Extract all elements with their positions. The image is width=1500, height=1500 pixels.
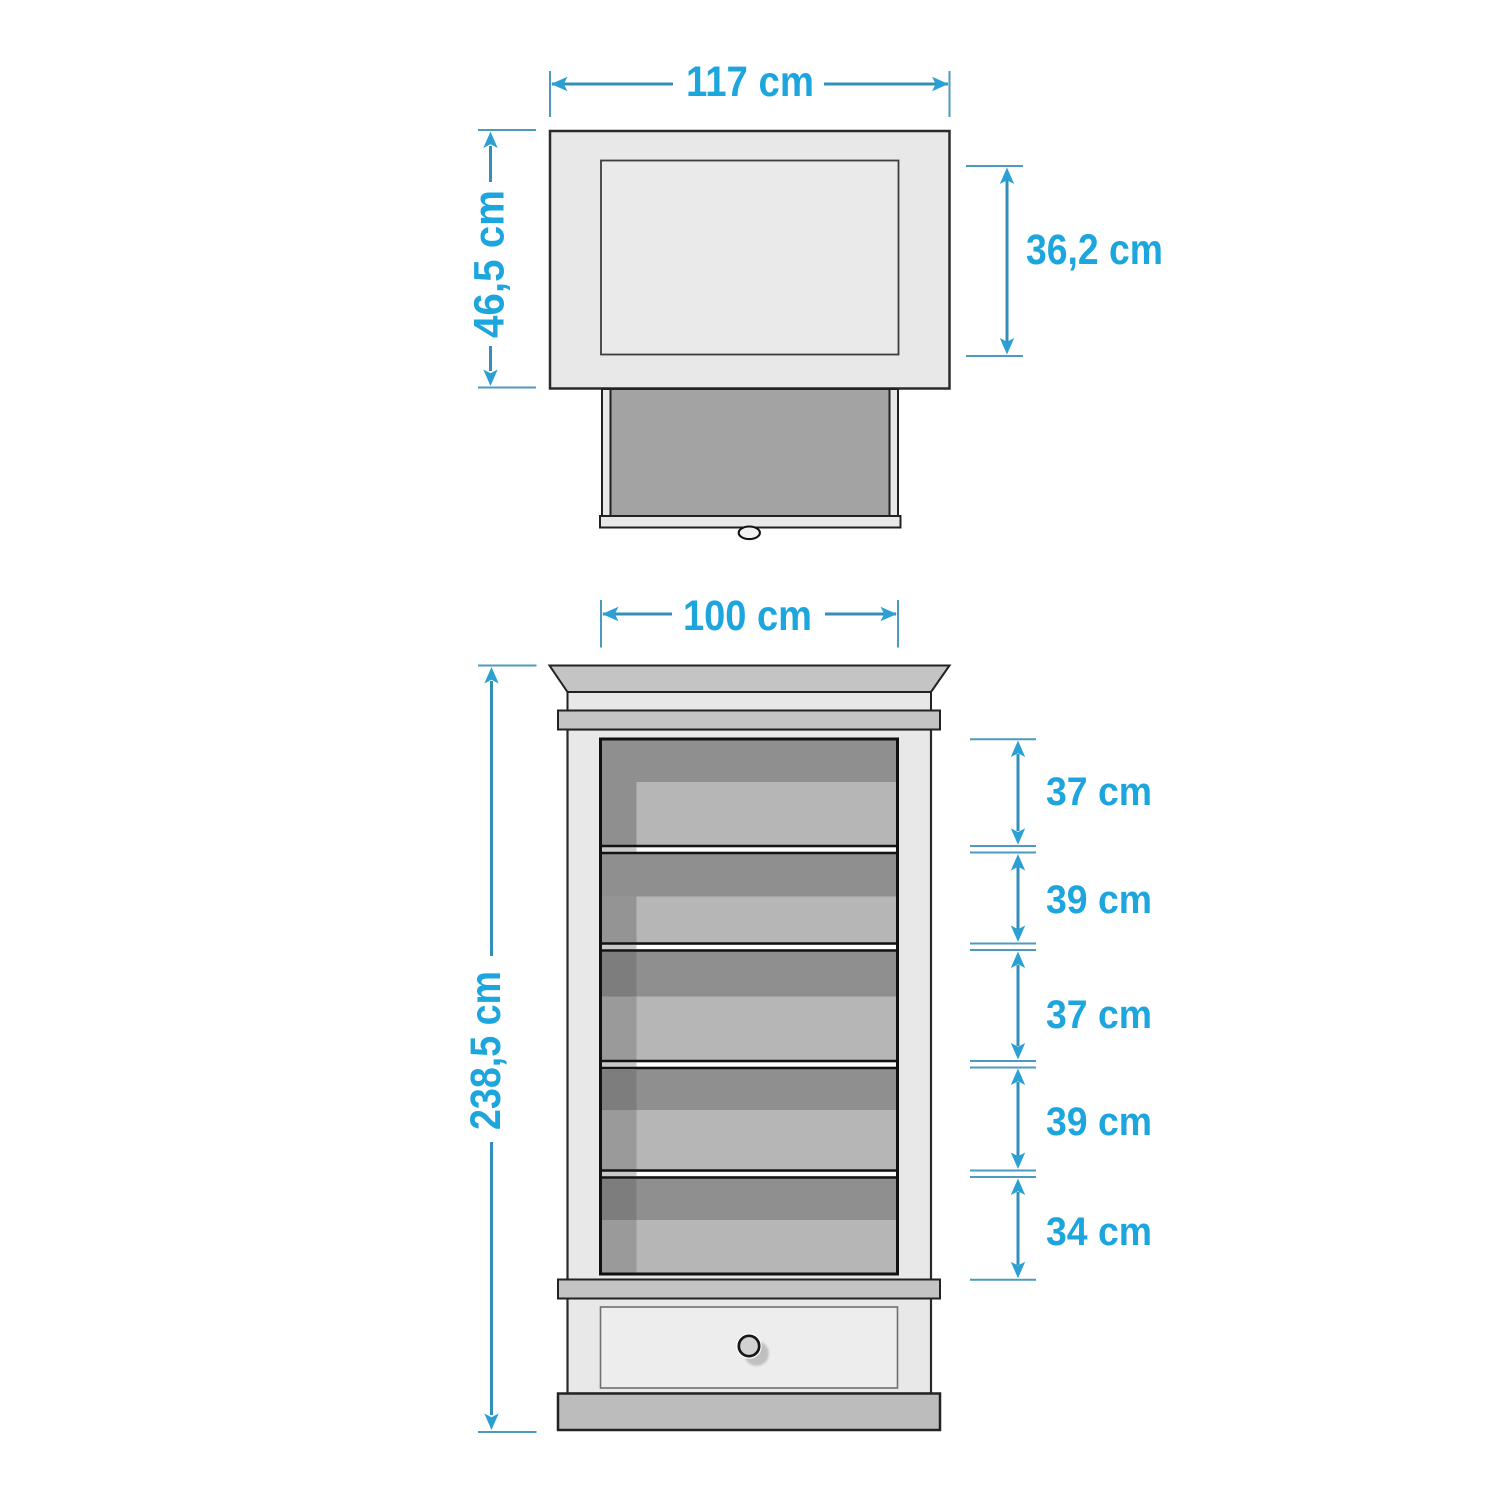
svg-text:34 cm: 34 cm <box>1046 1210 1152 1254</box>
svg-text:238,5 cm: 238,5 cm <box>462 971 510 1130</box>
svg-text:37 cm: 37 cm <box>1046 770 1152 814</box>
svg-text:37 cm: 37 cm <box>1046 993 1152 1037</box>
svg-text:39 cm: 39 cm <box>1046 1100 1152 1144</box>
svg-text:39 cm: 39 cm <box>1046 878 1152 922</box>
svg-text:46,5 cm: 46,5 cm <box>466 190 514 338</box>
svg-text:117 cm: 117 cm <box>686 58 814 106</box>
svg-text:36,2 cm: 36,2 cm <box>1026 226 1163 274</box>
svg-text:100 cm: 100 cm <box>683 592 812 640</box>
